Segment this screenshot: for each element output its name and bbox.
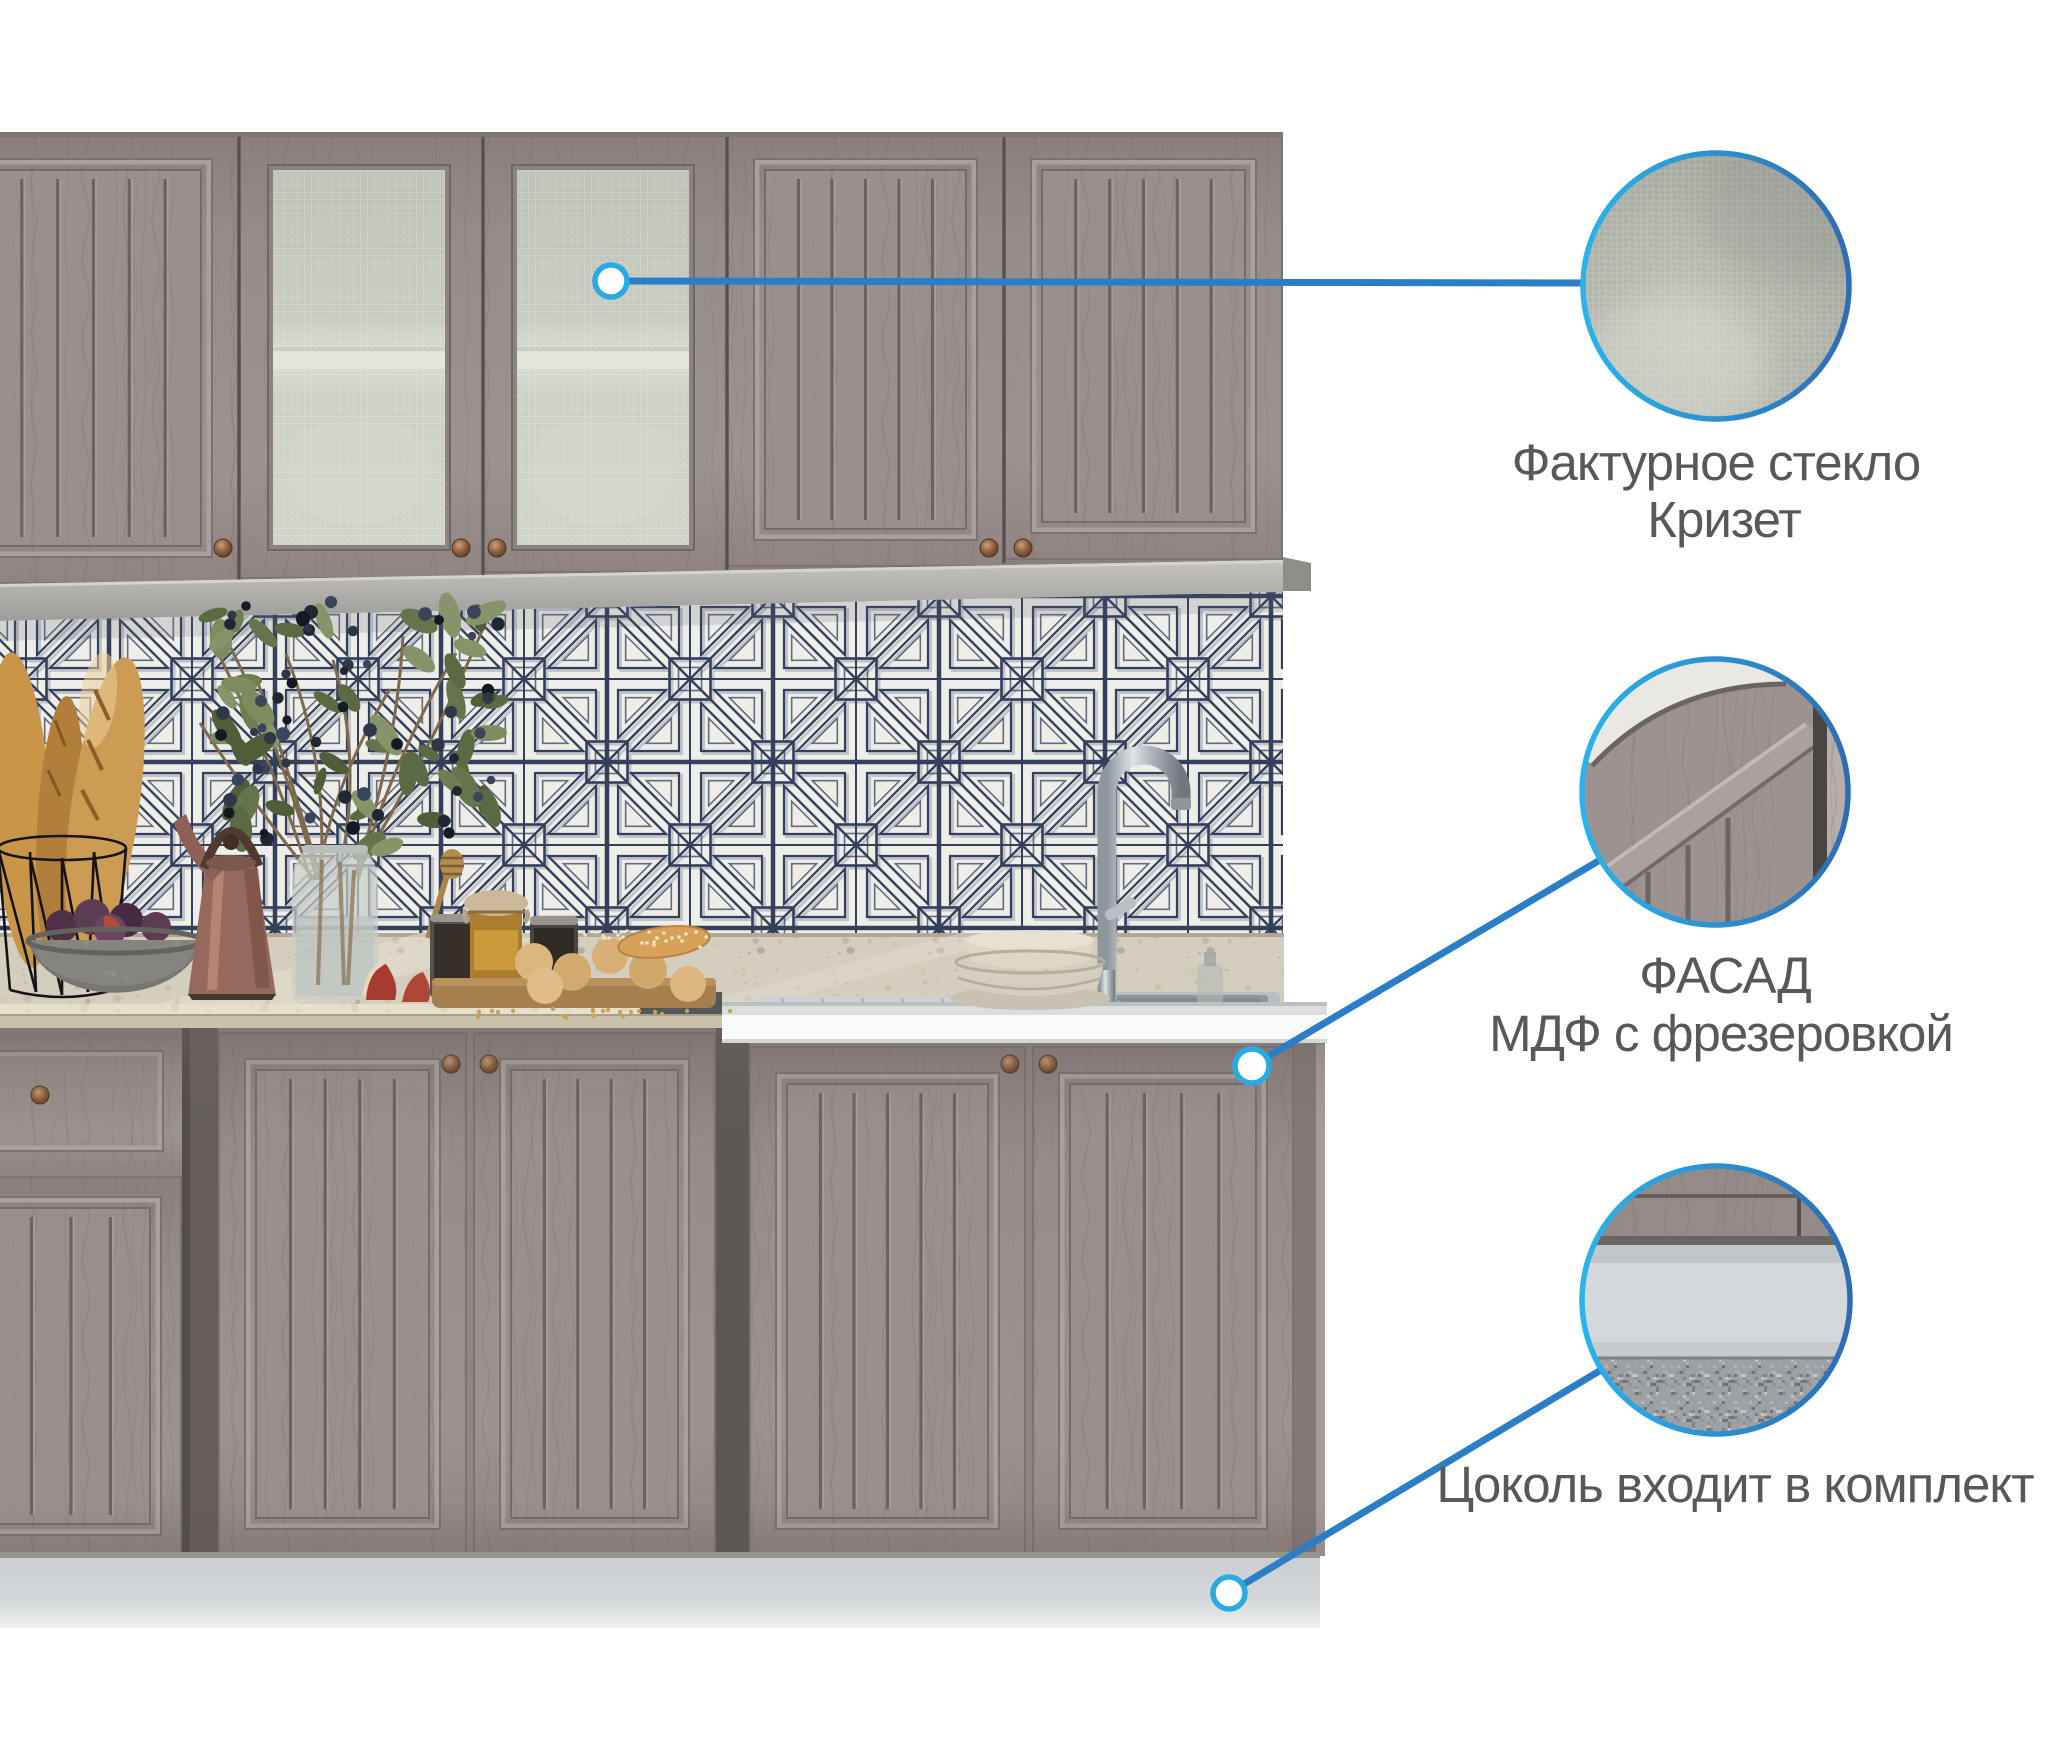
svg-text:ФАСАД: ФАСАД bbox=[1639, 947, 1811, 1004]
svg-text:Цоколь входит в комплект: Цоколь входит в комплект bbox=[1436, 1456, 2034, 1513]
svg-text:Кризет: Кризет bbox=[1647, 491, 1801, 548]
svg-text:МДФ с фрезеровкой: МДФ с фрезеровкой bbox=[1489, 1005, 1953, 1062]
svg-text:Фактурное стекло: Фактурное стекло bbox=[1512, 434, 1921, 491]
